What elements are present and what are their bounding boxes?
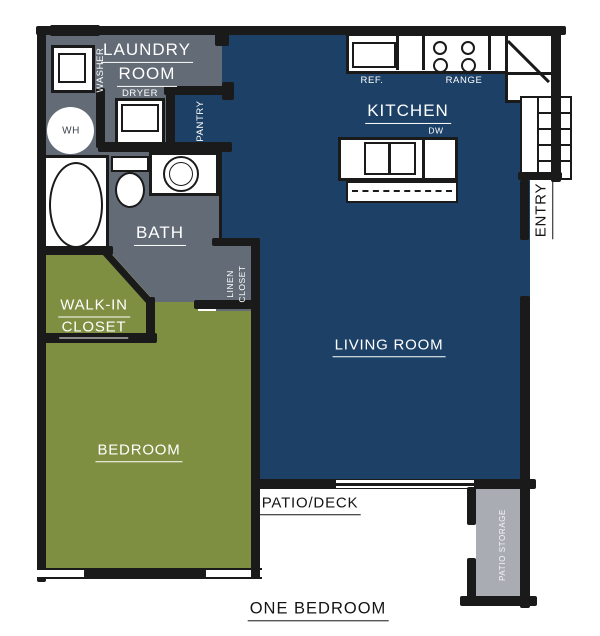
bedroom-label: BEDROOM [95,440,182,462]
walk-in-closet-label: WALK-IN CLOSET [58,296,130,339]
counter-divider [396,36,399,70]
bath-sink-inner [169,162,193,186]
counter-divider [488,36,491,70]
wall-east-mid [520,180,529,240]
wall-north [36,26,566,35]
window-north-laundry [50,25,100,36]
dryer-drum [121,104,159,132]
bath-kitchen-boundary [219,148,222,243]
counter-divider [422,36,425,70]
cabinet-divider [507,72,553,75]
wall-east-upper [551,26,561,182]
refrigerator-label: REF. [361,75,384,87]
dishwasher-label: DW [428,125,443,136]
window-bedroom-south [84,569,206,578]
refrigerator-fixture [352,42,396,68]
washer-drum [58,53,86,83]
dryer-label: DRYER [122,88,158,100]
bathtub-basin [49,162,103,248]
linen-closet-label: LINEN CLOSET [225,265,249,302]
range-burner [433,58,448,73]
toilet-tank [111,156,149,172]
wall-cap-pantry [222,82,234,100]
bath-label: BATH [134,222,186,246]
island-sink-bowl [364,142,390,175]
wall-west [37,26,46,582]
patio-deck-label: PATIO/DECK [260,493,361,515]
plan-title: ONE BEDROOM [248,598,389,621]
patio-storage-label: PATIO STORAGE [498,509,508,581]
kitchen-label: KITCHEN [365,100,451,124]
living-room-label: LIVING ROOM [333,335,446,357]
wall-dryer-west [96,88,105,148]
wall-east-lower [520,296,530,608]
range-burner [461,41,475,55]
wall-stub-north [215,26,229,46]
stair-divider [537,98,539,178]
stair-run [520,96,572,180]
wall-cabinet-south [518,172,562,180]
entry-label: ENTRY [531,181,553,240]
pantry-label: PANTRY [195,100,207,141]
floor-plan: LAUNDRY ROOM DRYER WASHER PANTRY WH BATH… [0,0,600,636]
laundry-room-label: LAUNDRY ROOM [101,39,193,87]
island-sink-bowl [389,142,416,175]
sliding-door-line [336,483,474,486]
wall-storage-west-upper [467,487,476,525]
wall-laundry-bath [98,142,232,152]
washer-label: WASHER [95,48,107,93]
range-burner [461,58,476,73]
kitchen-living-floor [222,30,530,486]
toilet-bowl [115,172,145,208]
island-bar-top [346,181,458,203]
wall-pantry-west [166,86,175,152]
wall-storage-south [460,596,537,606]
range-label: RANGE [446,75,483,87]
water-heater-label: WH [62,125,80,138]
island-bar-dashes [352,190,452,192]
range-burner [433,41,447,55]
island-divider [422,140,425,178]
